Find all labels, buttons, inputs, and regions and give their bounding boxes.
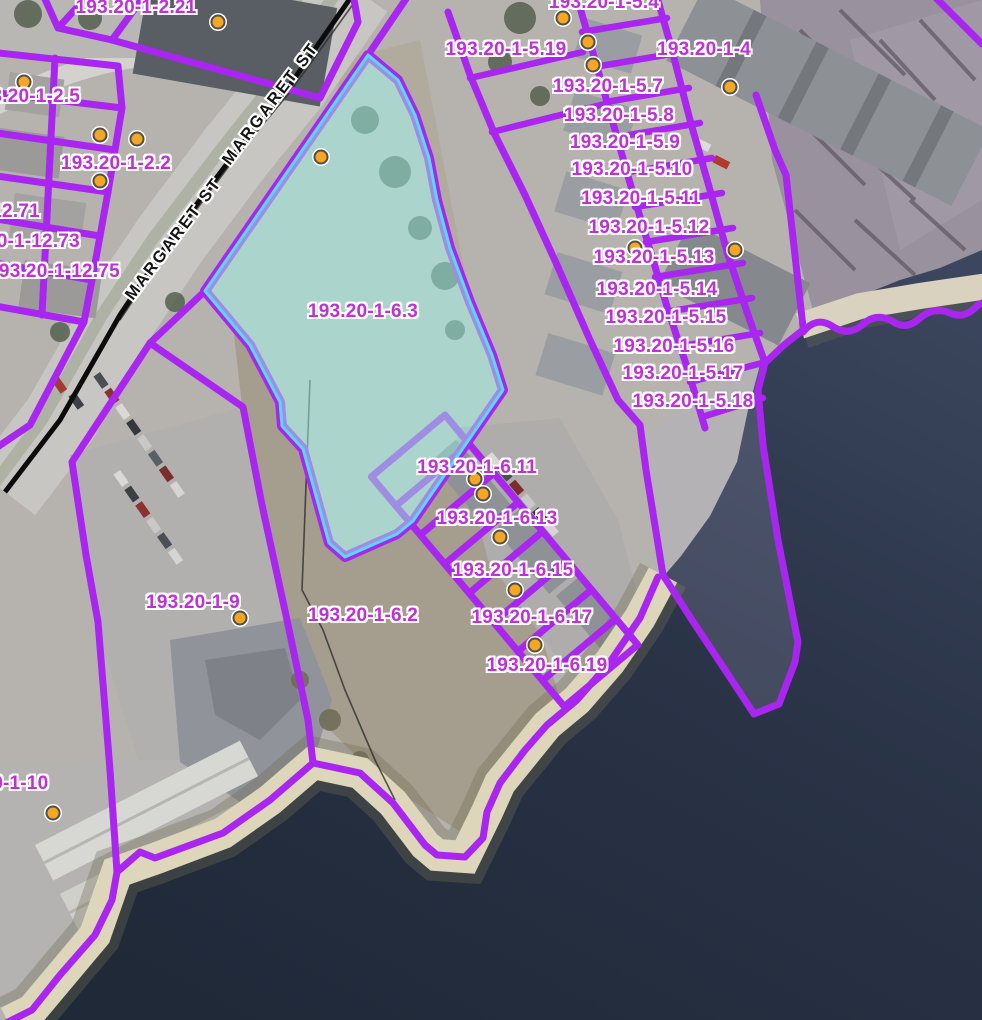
map-viewport[interactable]: MARGARET STMARGARET ST 193.20-1-2.21193.… (0, 0, 982, 1020)
aerial-basemap (0, 0, 982, 1020)
